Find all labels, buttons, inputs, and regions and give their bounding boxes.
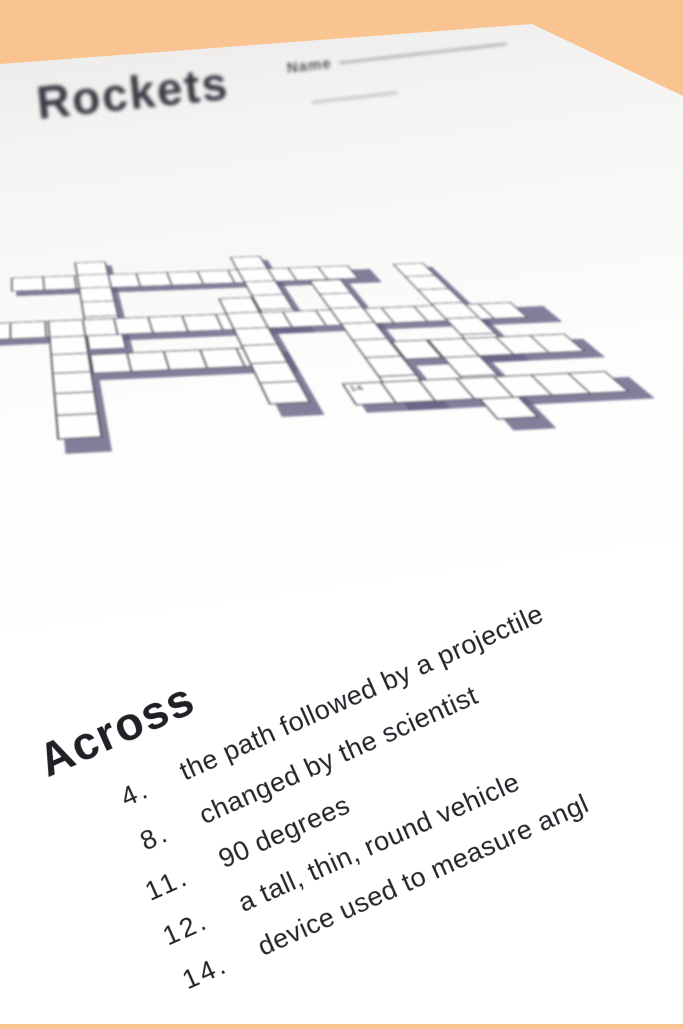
- name-label: Name: [286, 55, 332, 77]
- cell-number: 14: [347, 384, 366, 392]
- crossword-cell: [42, 275, 77, 290]
- crossword-grid: 14: [0, 249, 683, 479]
- crossword-cell: [10, 321, 48, 340]
- worksheet-paper: 14 Rockets Name Across 4.the path follow…: [0, 0, 683, 1024]
- crossword-cell: [11, 277, 45, 292]
- crossword-cell: [55, 413, 102, 440]
- photo-stage: 14 Rockets Name Across 4.the path follow…: [0, 0, 683, 1024]
